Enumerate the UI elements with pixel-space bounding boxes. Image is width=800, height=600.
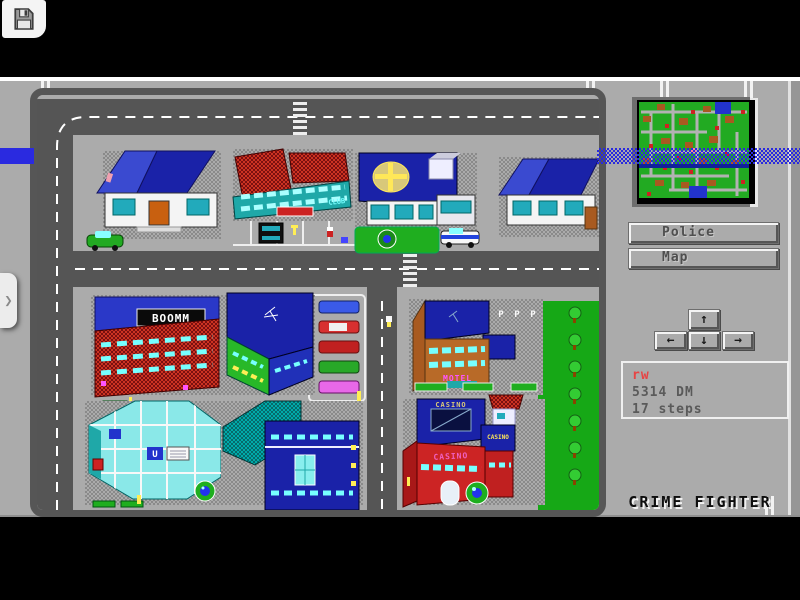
status-panel: rw 5314 DM 17 steps (621, 361, 789, 419)
helipad-icon (373, 162, 409, 192)
building-boomm: BOOMM (91, 295, 225, 408)
map-button-label: Map (662, 250, 688, 265)
building-office (499, 157, 599, 237)
pipe-decoration (660, 81, 663, 100)
building-department-store (221, 401, 363, 510)
right-edge-shade (791, 81, 800, 517)
svg-text:P: P (530, 310, 536, 320)
blue-band-right (597, 148, 800, 164)
city-viewport[interactable]: CLUB (30, 88, 606, 517)
map-button[interactable]: Map (628, 248, 779, 269)
fountain-icon (195, 481, 215, 501)
building-navy-office (223, 293, 361, 401)
move-left-button[interactable]: ← (654, 331, 687, 350)
move-right-button[interactable]: → (722, 331, 754, 350)
u-sign: U (152, 450, 157, 460)
building-police (355, 153, 479, 253)
game-title: CRIME FIGHTER (602, 493, 798, 511)
dumpster (585, 207, 597, 229)
arrow-left-icon: ← (667, 333, 675, 348)
arrow-right-icon: → (734, 333, 742, 348)
pipe-decoration (750, 81, 753, 100)
police-button-label: Police (662, 225, 715, 240)
hedge (93, 501, 115, 507)
steps-value: 17 steps (632, 401, 778, 418)
drawer-handle[interactable]: ❯ (0, 273, 17, 328)
lamp-post (137, 495, 141, 504)
pipe-decoration (666, 81, 669, 100)
lamp-post (407, 477, 410, 486)
move-up-button[interactable]: ↑ (688, 309, 720, 330)
building-motel: MOTEL P P P (409, 299, 543, 395)
hedges (415, 383, 537, 391)
svg-text:P: P (498, 310, 504, 320)
building-casino: CASINO CASINO CASINO (403, 395, 545, 507)
park (538, 301, 599, 510)
city-map: CLUB (37, 95, 599, 510)
black-car (259, 223, 283, 243)
game-screen: CLUB (0, 81, 800, 517)
money-value: 5314 DM (632, 384, 778, 401)
police-button[interactable]: Police (628, 222, 779, 244)
casino-wall-sign: CASINO (433, 451, 468, 462)
building-cyan-mall: U (85, 395, 225, 507)
player-initials: rw (632, 367, 778, 384)
casino-side-sign: CASINO (487, 434, 509, 441)
move-down-button[interactable]: ↓ (688, 331, 720, 350)
save-icon (12, 7, 36, 31)
arrow-up-icon: ↑ (700, 312, 708, 327)
casino-roof-sign: CASINO (435, 401, 466, 409)
fountain-icon (378, 230, 396, 248)
svg-text:P: P (514, 310, 520, 320)
fountain-icon (466, 482, 488, 504)
building-dealership (87, 151, 221, 251)
save-button[interactable] (2, 0, 46, 38)
desktop: { "emulator": { "save_icon": "floppy-dis… (0, 0, 800, 600)
lamp-post (357, 391, 361, 401)
arrow-down-icon: ↓ (700, 333, 708, 348)
pipe-decoration (744, 81, 747, 100)
chevron-right-icon: ❯ (4, 293, 12, 309)
blue-band-left (0, 148, 34, 164)
